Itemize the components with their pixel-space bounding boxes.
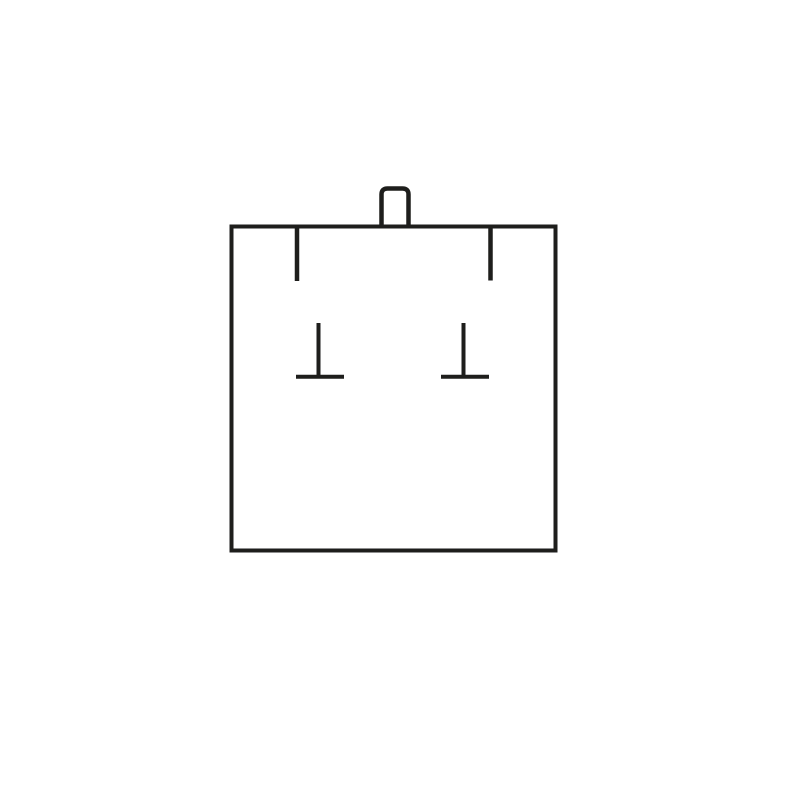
diagram-canvas (0, 0, 800, 800)
top-tab (382, 189, 409, 229)
box-diagram-svg (0, 0, 800, 800)
box-outline (232, 227, 556, 551)
